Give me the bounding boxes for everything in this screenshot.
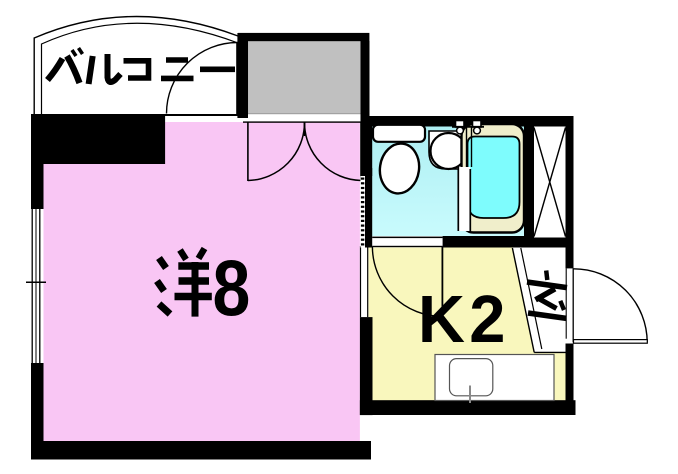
svg-text:8: 8 [212,243,250,332]
svg-text:K2: K2 [418,281,510,356]
